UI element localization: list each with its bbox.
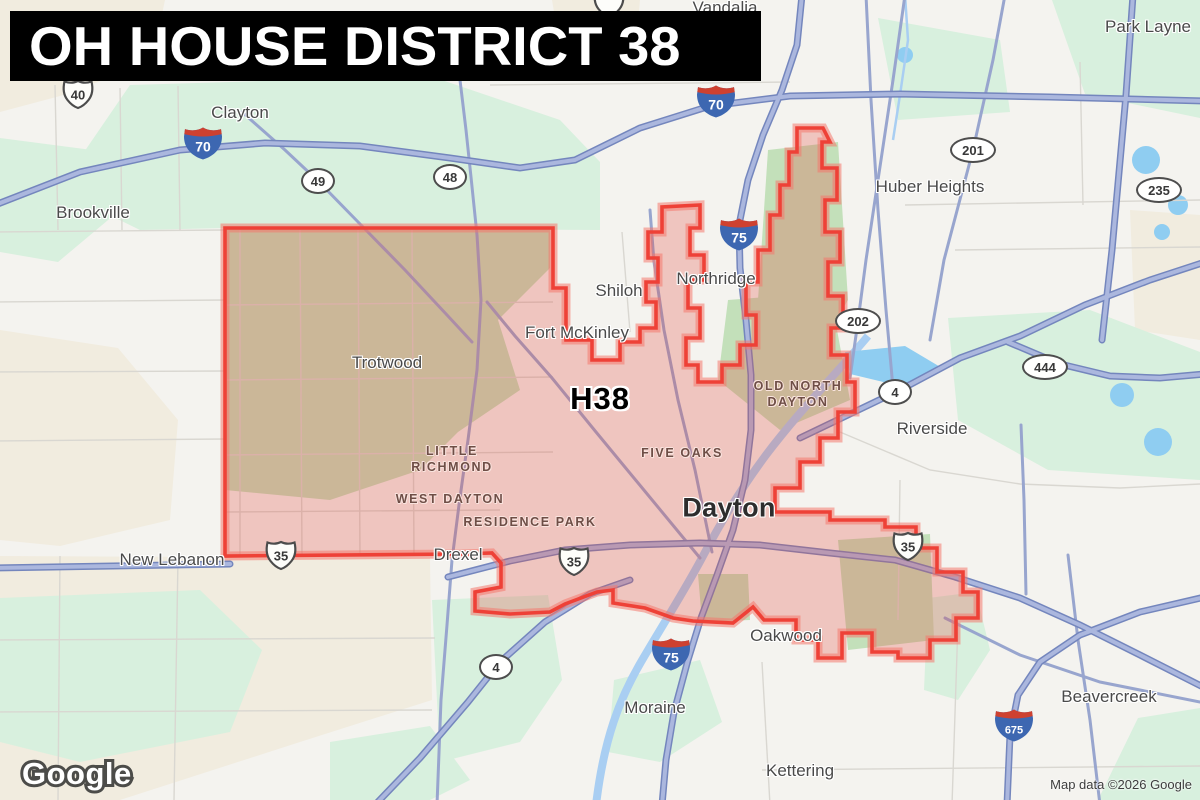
google-logo[interactable]: Google [16,750,166,796]
district-id-label: H38 [570,381,630,417]
title-banner: OH HOUSE DISTRICT 38 [10,11,761,81]
map-data-attribution: Map data ©2026 Google [1050,777,1192,792]
banner-title-text: OH HOUSE DISTRICT 38 [29,14,680,78]
google-logo-text: Google [22,756,132,791]
map-screenshot: 70 70 75 75 675 40 35 35 [0,0,1200,800]
